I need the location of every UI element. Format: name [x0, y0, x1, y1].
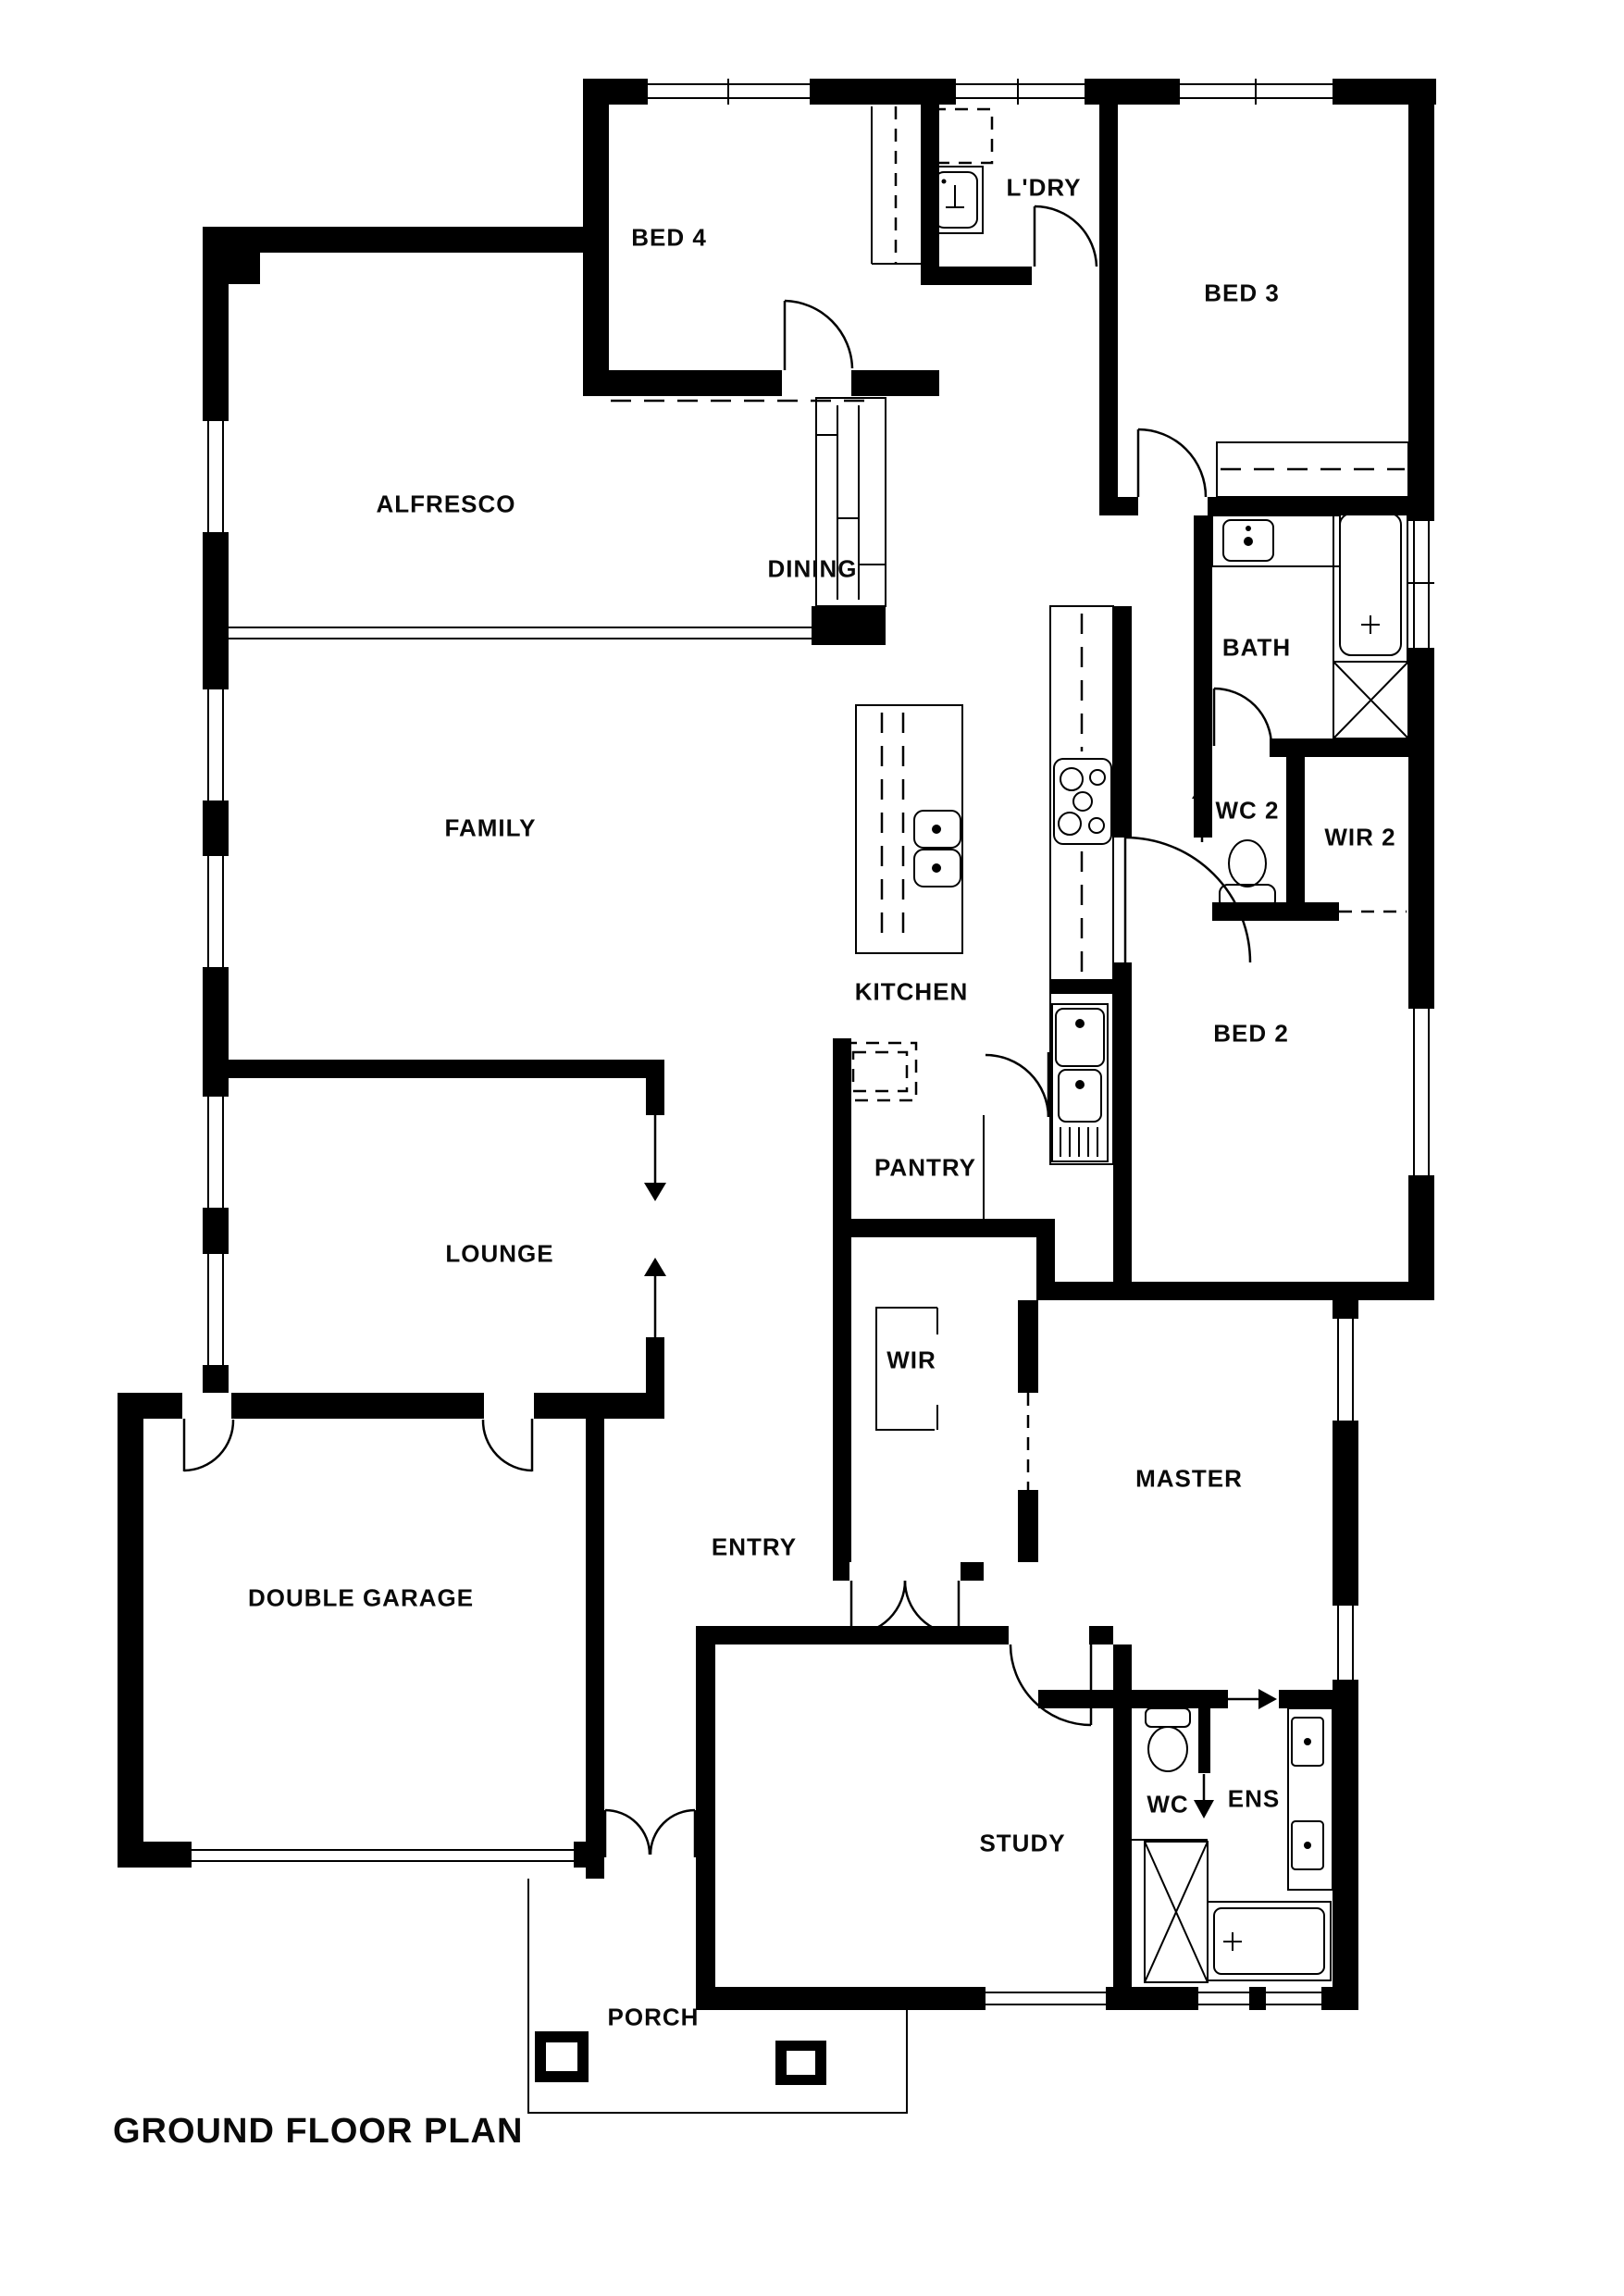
- room-label-entry: ENTRY: [712, 1533, 797, 1562]
- window-alfresco-side: [203, 421, 229, 532]
- room-label-ens: ENS: [1228, 1785, 1280, 1814]
- door-pantry: [986, 1052, 1048, 1117]
- room-label-wc2: WC 2: [1216, 797, 1280, 825]
- window-master-2: [1333, 1606, 1358, 1680]
- room-label-bed2: BED 2: [1213, 1020, 1289, 1049]
- door-bath: [1214, 689, 1271, 746]
- toilet-wc2: [1220, 840, 1275, 909]
- room-label-bath: BATH: [1222, 634, 1291, 663]
- lounge-slider-arrow-down: [644, 1115, 666, 1201]
- plan-title: GROUND FLOOR PLAN: [113, 2112, 523, 2152]
- room-label-pantry: PANTRY: [874, 1154, 976, 1183]
- bed4-robe: [872, 106, 921, 264]
- window-ldry: [956, 79, 1085, 105]
- door-study: [1010, 1644, 1091, 1725]
- window-bed2: [1408, 1009, 1434, 1175]
- floor-plan-drawing: [0, 0, 1624, 2296]
- window-lounge-1: [203, 1097, 229, 1208]
- kitchen-sink: [1052, 1004, 1108, 1161]
- room-label-wir2: WIR 2: [1324, 824, 1395, 852]
- window-study: [986, 1987, 1106, 2010]
- room-label-garage: DOUBLE GARAGE: [248, 1584, 474, 1613]
- room-label-ldry: L'DRY: [1007, 174, 1082, 203]
- toilet-wc: [1146, 1708, 1190, 1771]
- porch-post-left: [535, 2031, 589, 2082]
- ens-vanity: [1288, 1708, 1333, 1890]
- fridge-space: [844, 1043, 916, 1100]
- room-label-wir: WIR: [886, 1347, 936, 1375]
- room-label-kitchen: KITCHEN: [855, 978, 969, 1007]
- ens-tub: [1208, 1902, 1331, 1980]
- porch-post-right: [775, 2041, 826, 2085]
- cooktop: [1054, 759, 1111, 844]
- room-label-dining: DINING: [768, 555, 858, 584]
- window-master-1: [1333, 1319, 1358, 1421]
- ens-shower: [1145, 1842, 1208, 1982]
- lounge-slider-arrow-up: [644, 1258, 666, 1344]
- ens-entry-arrow: [1226, 1689, 1277, 1709]
- room-label-study: STUDY: [979, 1830, 1065, 1858]
- laundry-appliance-space: [933, 109, 992, 163]
- bath-vanity: [1212, 515, 1340, 566]
- window-lounge-2: [203, 1254, 229, 1365]
- window-ens-1: [1198, 1987, 1249, 2010]
- window-family-2: [203, 856, 229, 967]
- window-ens-2: [1266, 1987, 1321, 2010]
- door-ldry: [1035, 206, 1097, 267]
- bath-tub: [1333, 507, 1407, 662]
- bed3-robe: [1217, 442, 1408, 497]
- room-label-porch: PORCH: [608, 2004, 700, 2032]
- floor-plan-page: BED 4 L'DRY BED 3 ALFRESCO DINING BATH F…: [0, 0, 1624, 2296]
- room-label-wc: WC: [1147, 1791, 1188, 1819]
- room-label-master: MASTER: [1135, 1465, 1243, 1494]
- window-bath: [1408, 521, 1434, 648]
- wc-entry-arrow: [1194, 1774, 1214, 1818]
- room-label-family: FAMILY: [445, 814, 537, 843]
- room-label-bed4: BED 4: [631, 224, 707, 253]
- door-garage-side: [184, 1419, 233, 1471]
- door-garage-entry: [483, 1419, 532, 1471]
- room-label-bed3: BED 3: [1204, 279, 1280, 308]
- door-bed3: [1138, 429, 1206, 497]
- door-bed2: [1125, 838, 1250, 962]
- front-double-doors: [605, 1810, 695, 1857]
- window-family-1: [203, 689, 229, 800]
- window-bed3: [1180, 79, 1333, 105]
- kitchen-island: [856, 705, 962, 953]
- room-label-lounge: LOUNGE: [445, 1240, 553, 1269]
- door-bed4: [785, 301, 852, 370]
- room-label-alfresco: ALFRESCO: [377, 490, 516, 519]
- bath-shower: [1333, 662, 1408, 738]
- window-bed4: [648, 79, 810, 105]
